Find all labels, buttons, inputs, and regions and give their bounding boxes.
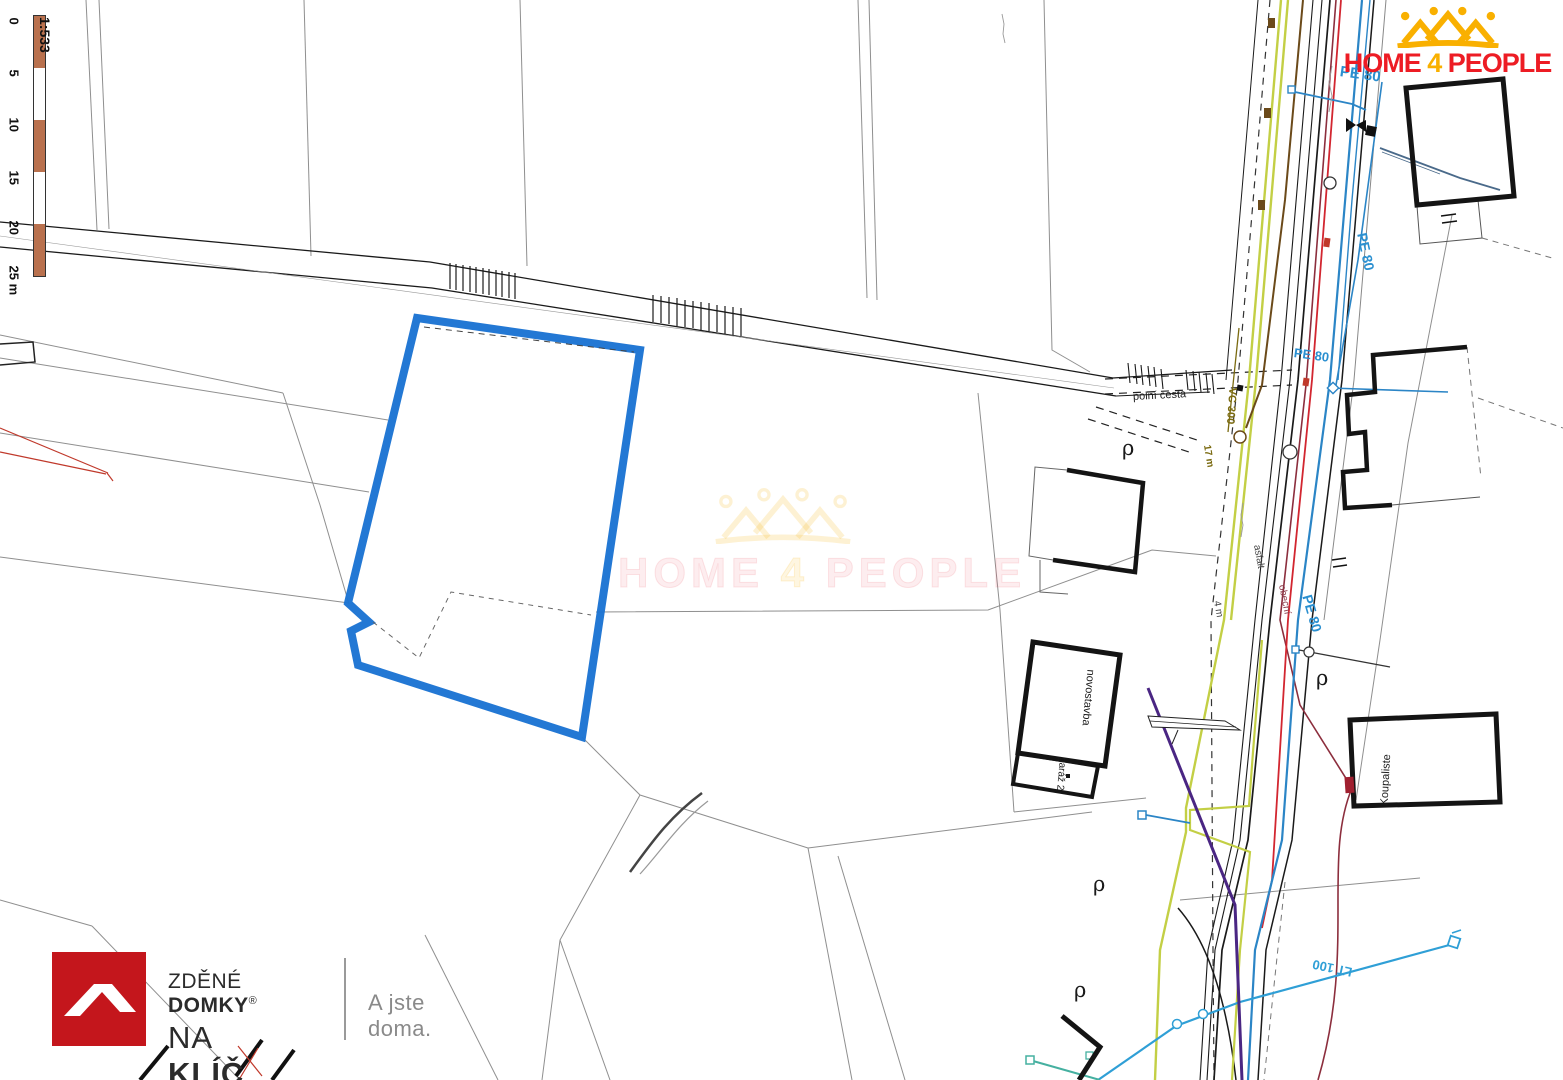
crown-icon (1388, 6, 1508, 48)
scale-tick: 20 (7, 221, 22, 235)
koupaliste-red-marker (1344, 777, 1354, 794)
buildings (0, 79, 1514, 1080)
building-left-edge (0, 342, 35, 365)
power-line-purple (1148, 688, 1242, 1080)
footer-tagline: A jste doma. (368, 990, 432, 1042)
scale-tick: 0 (7, 18, 22, 25)
building-novostavba (1018, 642, 1120, 766)
land-use-symbol-rho: ρ (1093, 874, 1105, 895)
scale-tick: 5 (7, 70, 22, 77)
label-4m: 4 m (1211, 600, 1224, 618)
brand-word-people: PEOPLE (1448, 48, 1552, 78)
registered-mark: ® (249, 995, 258, 1007)
red-marker (1302, 378, 1309, 387)
building-koupaliste (1350, 714, 1500, 806)
footer-word-domky: DOMKY (168, 994, 249, 1017)
scale-tick: 10 (7, 118, 22, 132)
label-17m: 17 m (1201, 444, 1214, 468)
gas-line-yellow (1155, 0, 1288, 1080)
manhole-circle (1283, 445, 1297, 459)
cadastral-map-drawing (0, 0, 1563, 1080)
highlighted-plot-outline (348, 318, 640, 737)
terrain-arcs (630, 793, 708, 874)
home4people-logo: HOME 4 PEOPLE (1340, 6, 1555, 79)
land-use-symbol-rho: ρ (1074, 980, 1086, 1001)
footer-word-klic: KLÍČ (168, 1056, 244, 1080)
scale-ratio: 1:533 (37, 17, 53, 53)
scale-bar (33, 15, 46, 277)
brand-word-four: 4 (1427, 48, 1441, 78)
footer-brand-text: ZDĚNÉ DOMKY® NA KLÍČ (168, 970, 257, 1080)
footer-divider (344, 958, 346, 1040)
hydrant-symbol (1365, 125, 1377, 137)
cadastral-map-page: 0 5 10 15 20 25 m 1:533 PE 80 PE 80 PE 8… (0, 0, 1563, 1080)
roof-icon (52, 952, 146, 1046)
brand-word-home: HOME (1344, 48, 1421, 78)
top-road (0, 222, 1232, 396)
scale-tick: 25 m (7, 266, 22, 296)
building-stepped (1343, 347, 1467, 508)
valve-bowtie-symbol (1356, 120, 1366, 132)
land-use-symbol-rho: ρ (1316, 668, 1328, 689)
label-garaz: garáž 2 (1054, 757, 1067, 791)
culvert-symbol (1148, 716, 1240, 744)
footer-word-na: NA (168, 1020, 211, 1055)
map-symbols (1002, 14, 1457, 744)
water-main-lt100 (1098, 930, 1461, 1080)
red-marker (1323, 238, 1330, 248)
scale-tick: 15 (7, 171, 22, 185)
house-connection-lines (1299, 148, 1500, 667)
building-center (1053, 470, 1143, 572)
manhole-circle (1324, 177, 1336, 189)
water-pipe-blue (1138, 0, 1448, 1080)
slope-hatch-band-1 (450, 263, 515, 299)
label-vc300: VC 300 (1224, 387, 1238, 424)
illegible-micro-text (1002, 14, 1332, 537)
building-top-right (1406, 79, 1514, 205)
footer-word-zdene: ZDĚNÉ (168, 970, 242, 993)
land-use-symbol-rho: ρ (1122, 438, 1134, 459)
manhole-circle (1304, 647, 1314, 657)
